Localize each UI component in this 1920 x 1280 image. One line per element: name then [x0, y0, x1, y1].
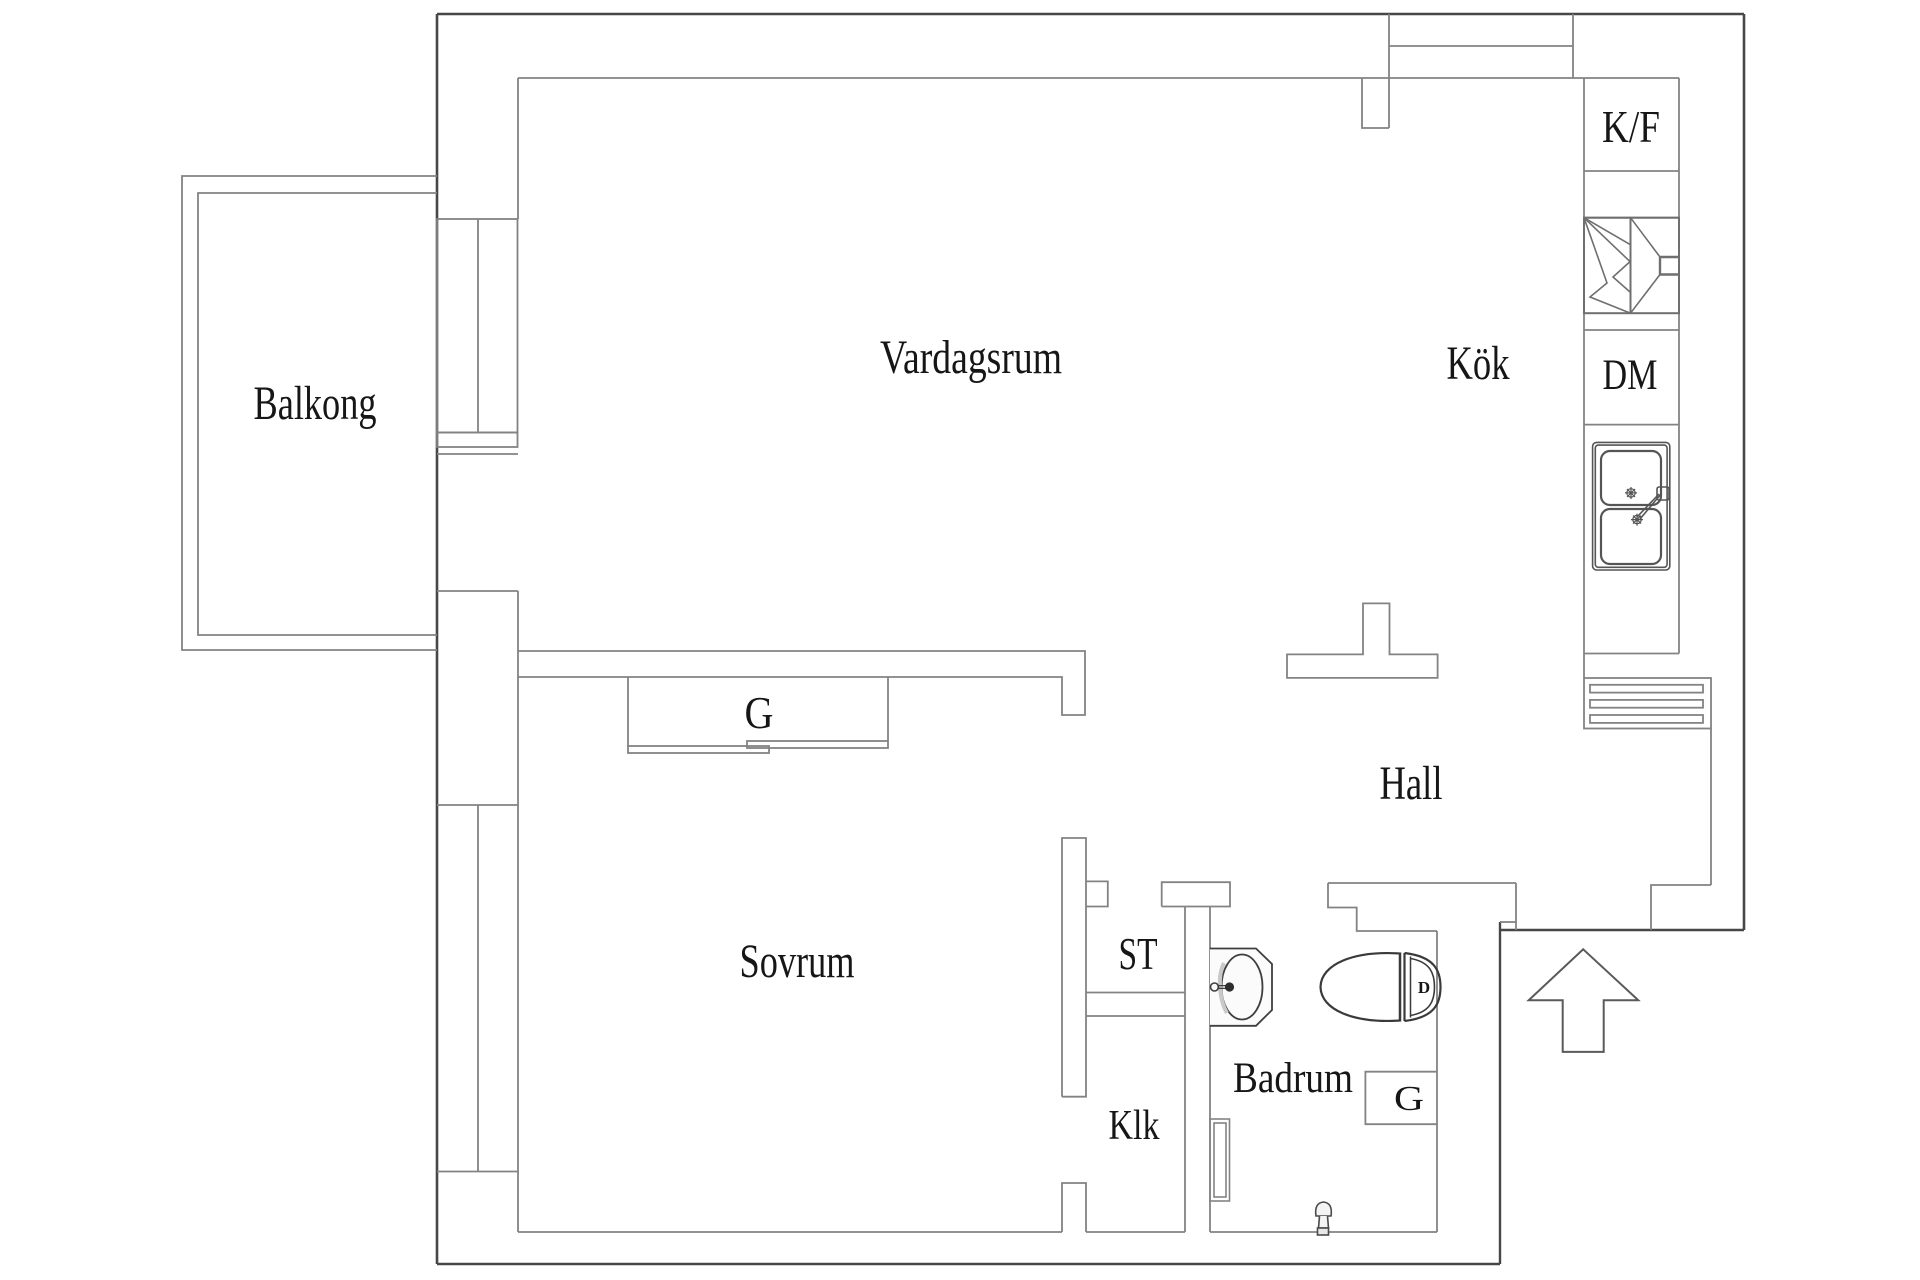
svg-text:ST: ST [1119, 929, 1158, 979]
svg-text:Klk: Klk [1109, 1103, 1160, 1149]
svg-text:D: D [1418, 978, 1430, 997]
svg-text:K/F: K/F [1602, 101, 1660, 152]
svg-text:Hall: Hall [1380, 757, 1443, 810]
svg-text:G: G [745, 688, 774, 738]
svg-text:G: G [1394, 1079, 1424, 1118]
svg-text:Kök: Kök [1447, 337, 1510, 390]
svg-text:Sovrum: Sovrum [740, 935, 855, 988]
svg-text:Badrum: Badrum [1233, 1055, 1353, 1102]
svg-text:DM: DM [1603, 352, 1658, 399]
svg-text:Balkong: Balkong [254, 377, 377, 430]
svg-text:Vardagsrum: Vardagsrum [880, 331, 1062, 384]
